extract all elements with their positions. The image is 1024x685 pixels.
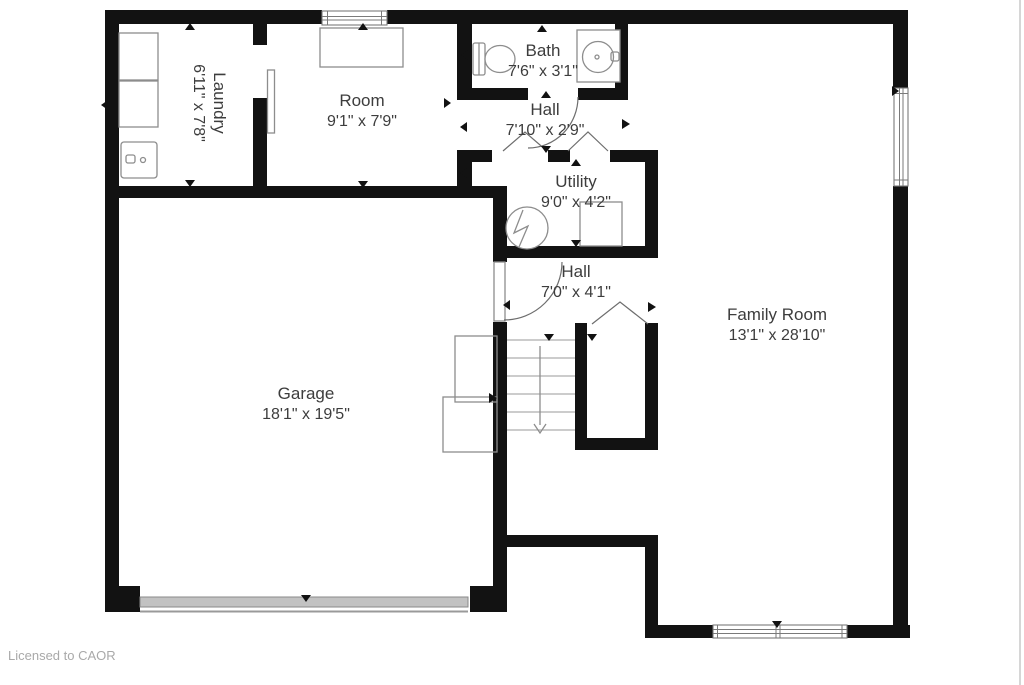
room-label-laundry: Laundry 6'11" x 7'8"	[188, 64, 230, 142]
room-label-bath: Bath 7'6" x 3'1"	[508, 40, 578, 82]
room-label-family-room: Family Room 13'1" x 28'10"	[727, 304, 827, 346]
room-name: Room	[327, 90, 397, 111]
laundry-door-leaf	[268, 70, 275, 133]
room-name: Laundry	[209, 64, 230, 142]
room-dims: 18'1" x 19'5"	[262, 404, 350, 425]
stairs-icon	[507, 340, 575, 433]
room-name: Hall	[541, 261, 611, 282]
room-dims: 9'1" x 7'9"	[327, 111, 397, 132]
room-dims: 9'0" x 4'2"	[541, 192, 611, 213]
room-label-hall-lower: Hall 7'0" x 4'1"	[541, 261, 611, 303]
room-dims: 6'11" x 7'8"	[188, 64, 209, 142]
room-name: Garage	[262, 383, 350, 404]
room-name: Family Room	[727, 304, 827, 325]
dresser-icon	[320, 28, 403, 67]
room-dims: 13'1" x 28'10"	[727, 325, 827, 346]
room-label-hall-upper: Hall 7'10" x 2'9"	[506, 99, 585, 141]
room-label-room: Room 9'1" x 7'9"	[327, 90, 397, 132]
window-bottom	[713, 625, 847, 638]
room-dims: 7'0" x 4'1"	[541, 282, 611, 303]
garage-shelves-icon	[443, 336, 497, 452]
room-dims: 7'6" x 3'1"	[508, 61, 578, 82]
water-heater-icon	[506, 207, 548, 249]
license-watermark: Licensed to CAOR	[8, 648, 116, 663]
room-name: Bath	[508, 40, 578, 61]
hall-door-leaf	[494, 262, 505, 321]
window-top	[322, 11, 387, 25]
floor-plan: Laundry 6'11" x 7'8" Room 9'1" x 7'9" Ba…	[0, 0, 1024, 685]
vanity-sink-icon	[577, 30, 620, 82]
room-label-utility: Utility 9'0" x 4'2"	[541, 171, 611, 213]
room-dims: 7'10" x 2'9"	[506, 120, 585, 141]
room-name: Hall	[506, 99, 585, 120]
room-label-garage: Garage 18'1" x 19'5"	[262, 383, 350, 425]
room-name: Utility	[541, 171, 611, 192]
closet-door	[592, 302, 648, 324]
washer-dryer-icon	[119, 33, 158, 127]
laundry-sink-icon	[121, 142, 157, 178]
window-right	[894, 88, 908, 186]
